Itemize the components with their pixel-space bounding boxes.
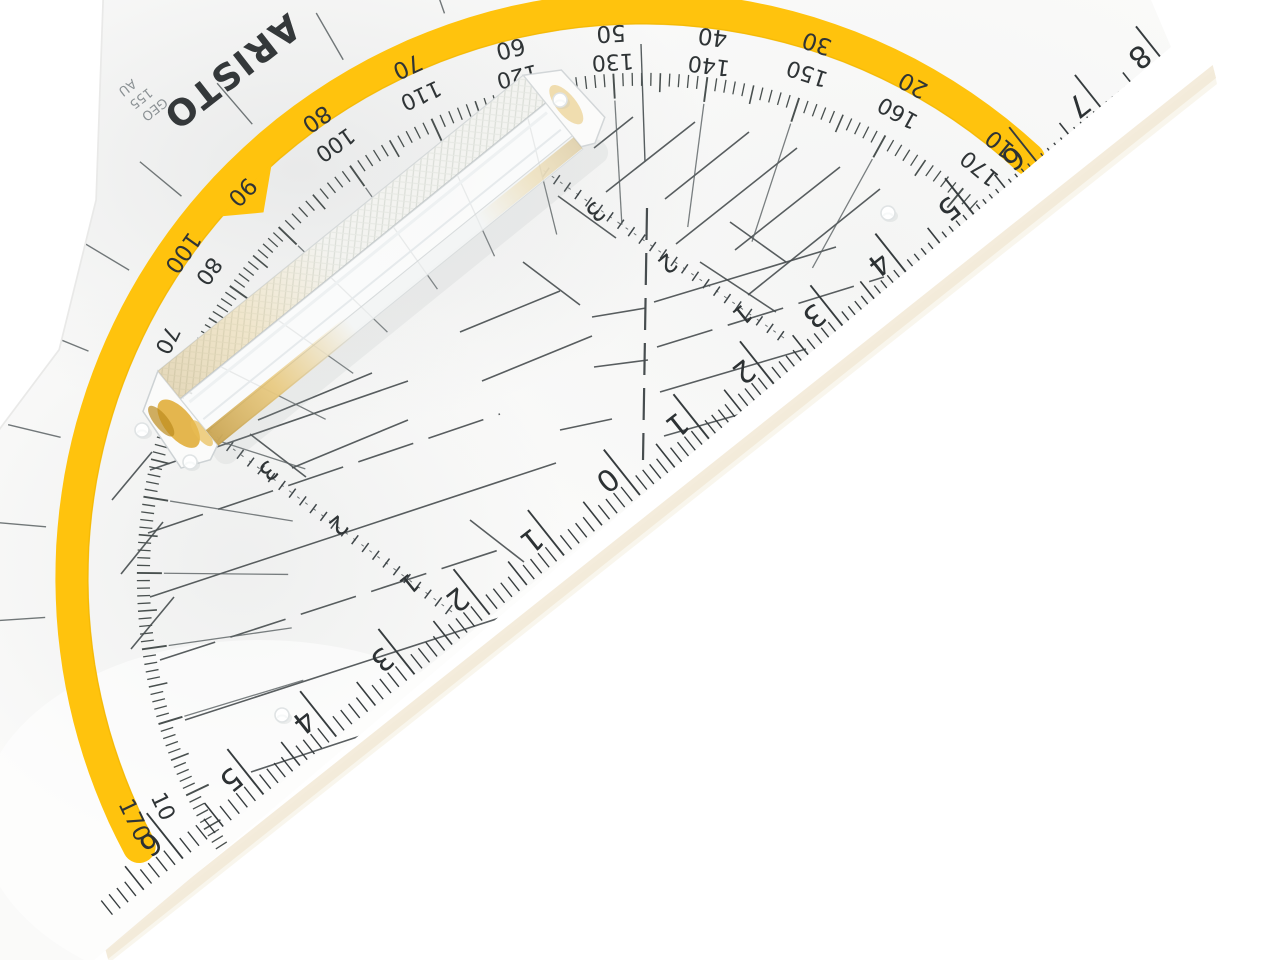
protractor-label-outer-50: 50 (596, 19, 627, 47)
protractor-label-outer-40: 40 (697, 22, 729, 52)
protractor-label-inner-130: 130 (591, 48, 634, 75)
degree-tick (138, 550, 151, 551)
geo-triangle-photo: 123123 102030405060708090100170100110120… (0, 0, 1280, 960)
degree-tick (138, 603, 151, 604)
product-photo: 123123 102030405060708090100170100110120… (0, 0, 1280, 960)
degree-tick (137, 558, 150, 559)
degree-tick (669, 74, 670, 87)
degree-tick (138, 542, 151, 543)
degree-tick (660, 73, 661, 92)
